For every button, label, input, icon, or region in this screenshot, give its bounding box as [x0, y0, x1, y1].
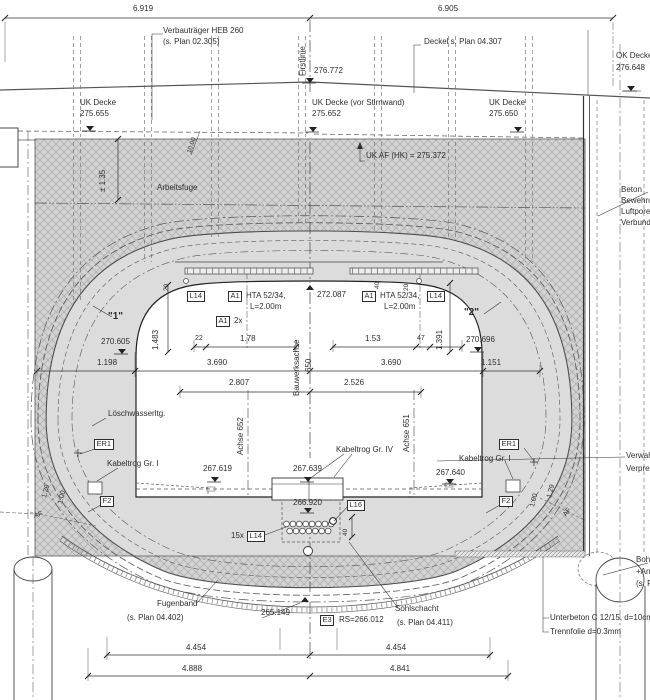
label-d4841: 4.841: [390, 665, 410, 674]
label-sohl1: Sohlschacht: [395, 605, 439, 614]
label-dim-20a: 20: [163, 284, 170, 291]
label-uk-decke-m2: 275.652: [312, 110, 341, 119]
label-uk-decke-l1: UK Decke: [80, 99, 116, 108]
label-uk-decke-m1: UK Decke (vor Stirnwand): [312, 99, 404, 108]
label-bohr2: +Anker: [636, 568, 650, 577]
label-er1-l: ER1: [94, 439, 114, 450]
label-d4454a: 4.454: [186, 644, 206, 653]
label-deckel: Deckel s. Plan 04.307: [424, 38, 502, 47]
label-q1: "1": [108, 312, 123, 323]
label-d4454b: 4.454: [386, 644, 406, 653]
label-b650: 650: [305, 359, 314, 372]
label-dim-153: 1.53: [365, 335, 381, 344]
label-l14-b: L14: [247, 531, 265, 542]
label-dim-47: 47: [417, 335, 425, 343]
label-dim-2807: 2.807: [229, 379, 249, 388]
label-unterbeton: Unterbeton C 12/15, d=10cm: [550, 614, 650, 623]
label-l14-left: L14: [187, 291, 205, 302]
label-f2-r: F2: [499, 496, 513, 507]
label-d129r: 1.29: [546, 484, 557, 499]
label-sohl2: (s. Plan 04.411): [397, 619, 453, 628]
label-af-l: AF: [33, 511, 44, 521]
label-verwahr: Verwahrrohr: [626, 452, 650, 461]
label-lvl-270605: 270.605: [101, 338, 130, 347]
label-hta-l2: L=2.00m: [250, 303, 281, 312]
label-q2: "2": [464, 308, 479, 319]
label-f2-l: F2: [100, 496, 114, 507]
label-lvl-267640: 267.640: [436, 469, 465, 478]
label-dim-20b: 20: [403, 284, 410, 291]
label-hta-r2: L=2.00m: [384, 303, 415, 312]
label-dim-22: 22: [195, 335, 203, 343]
label-l14-right: L14: [427, 291, 445, 302]
label-achse651: Achse 651: [403, 414, 412, 452]
label-kabeltrog-l: Kabeltrog Gr. I: [107, 460, 159, 469]
label-hta-l1: HTA 52/34,: [246, 292, 285, 301]
label-a1-left: A1: [228, 291, 242, 302]
label-achse652: Achse 652: [237, 417, 246, 455]
label-verbau1: Verbauträger HEB 260: [163, 27, 244, 36]
label-lvl-266920: 266.920: [293, 499, 322, 508]
label-bauwerksachse: Bauwerksachse: [293, 340, 302, 396]
label-dim-1198: 1.198: [97, 359, 117, 368]
label-lvl-270696: 270.696: [466, 336, 495, 345]
label-beton2: Bewehrung: [621, 197, 650, 206]
label-uk-decke-r2: 275.650: [489, 110, 518, 119]
label-loeschwasser: Löschwasserltg.: [108, 410, 165, 419]
label-dim-135: ± 1.35: [99, 170, 108, 192]
label-dim-1391: 1.391: [436, 330, 445, 350]
label-uk-decke-l2: 275.655: [80, 110, 109, 119]
label-kabeltrog-r: Kabeltrog Gr. I: [459, 455, 511, 464]
label-af-r: AF: [562, 507, 573, 519]
label-uk-af: UK AF (HK) = 275.372: [366, 152, 446, 161]
label-dim-1483: 1.483: [152, 330, 161, 350]
label-dim-178: 1.78: [240, 335, 256, 344]
label-bohr1: Bohrpfahl: [636, 556, 650, 565]
label-lvl-272087: 272.087: [317, 291, 346, 300]
label-ok-decke2: 276.648: [616, 64, 645, 73]
label-a1-right: A1: [362, 291, 376, 302]
label-arbeitsfuge: Arbeitsfuge: [157, 184, 197, 193]
label-dim-6905: 6.905: [438, 5, 458, 14]
label-kabeltrog-m: Kabeltrog Gr. IV: [336, 446, 393, 455]
label-lvl-265149: 265.149: [261, 609, 290, 618]
label-lvl-267639: 267.639: [293, 465, 322, 474]
label-dim-3690a: 3.690: [207, 359, 227, 368]
label-beton1: Beton: [621, 186, 642, 195]
drawing-sheet: 6.9196.905Verbauträger HEB 260(s. Plan 0…: [0, 0, 650, 700]
label-ok-decke1: OK Decke: [616, 52, 650, 61]
label-beton3: Luftporen: [621, 208, 650, 217]
label-er1-r: ER1: [499, 439, 519, 450]
label-rs266: RS=266.012: [339, 616, 384, 625]
label-dim-1151: 1.151: [481, 359, 501, 368]
label-dim-2526: 2.526: [344, 379, 364, 388]
label-dim-3690b: 3.690: [381, 359, 401, 368]
label-lvl-267619: 267.619: [203, 465, 232, 474]
label-dim-6919: 6.919: [133, 5, 153, 14]
label-dim-40c: 40: [342, 529, 349, 536]
label-firstlinie: Firstlinie: [299, 46, 308, 76]
label-fugenband1: Fugenband: [157, 600, 197, 609]
label-d129l: 1.29: [41, 484, 52, 499]
label-d100r: 1.00: [529, 493, 540, 508]
label-trennfolie: Trennfolie d=0.3mm: [550, 628, 621, 637]
label-hta-r1: HTA 52/34,: [380, 292, 419, 301]
label-l16: L16: [347, 500, 365, 511]
label-d15x: 15x: [231, 532, 244, 541]
label-a1-2x: 2x: [234, 317, 242, 326]
label-lvl-276772: 276.772: [314, 67, 343, 76]
label-beton4: Verbund: [621, 219, 650, 228]
label-a1-2x-box: A1: [216, 316, 230, 327]
label-d4888: 4.888: [182, 665, 202, 674]
labels-layer: 6.9196.905Verbauträger HEB 260(s. Plan 0…: [0, 0, 650, 700]
label-e3: E3: [320, 615, 334, 626]
label-slope-10: 10.00: [186, 137, 198, 155]
label-d100l: 1.00: [57, 490, 68, 505]
label-bohr3: (s. Plan: [636, 580, 650, 589]
label-verpress: Verpressschlauch: [626, 465, 650, 474]
label-verbau2: (s. Plan 02.305): [163, 38, 219, 47]
label-uk-decke-r1: UK Decke: [489, 99, 525, 108]
label-dim-40a: 40: [374, 282, 381, 289]
label-fugenband2: (s. Plan 04.402): [127, 614, 183, 623]
